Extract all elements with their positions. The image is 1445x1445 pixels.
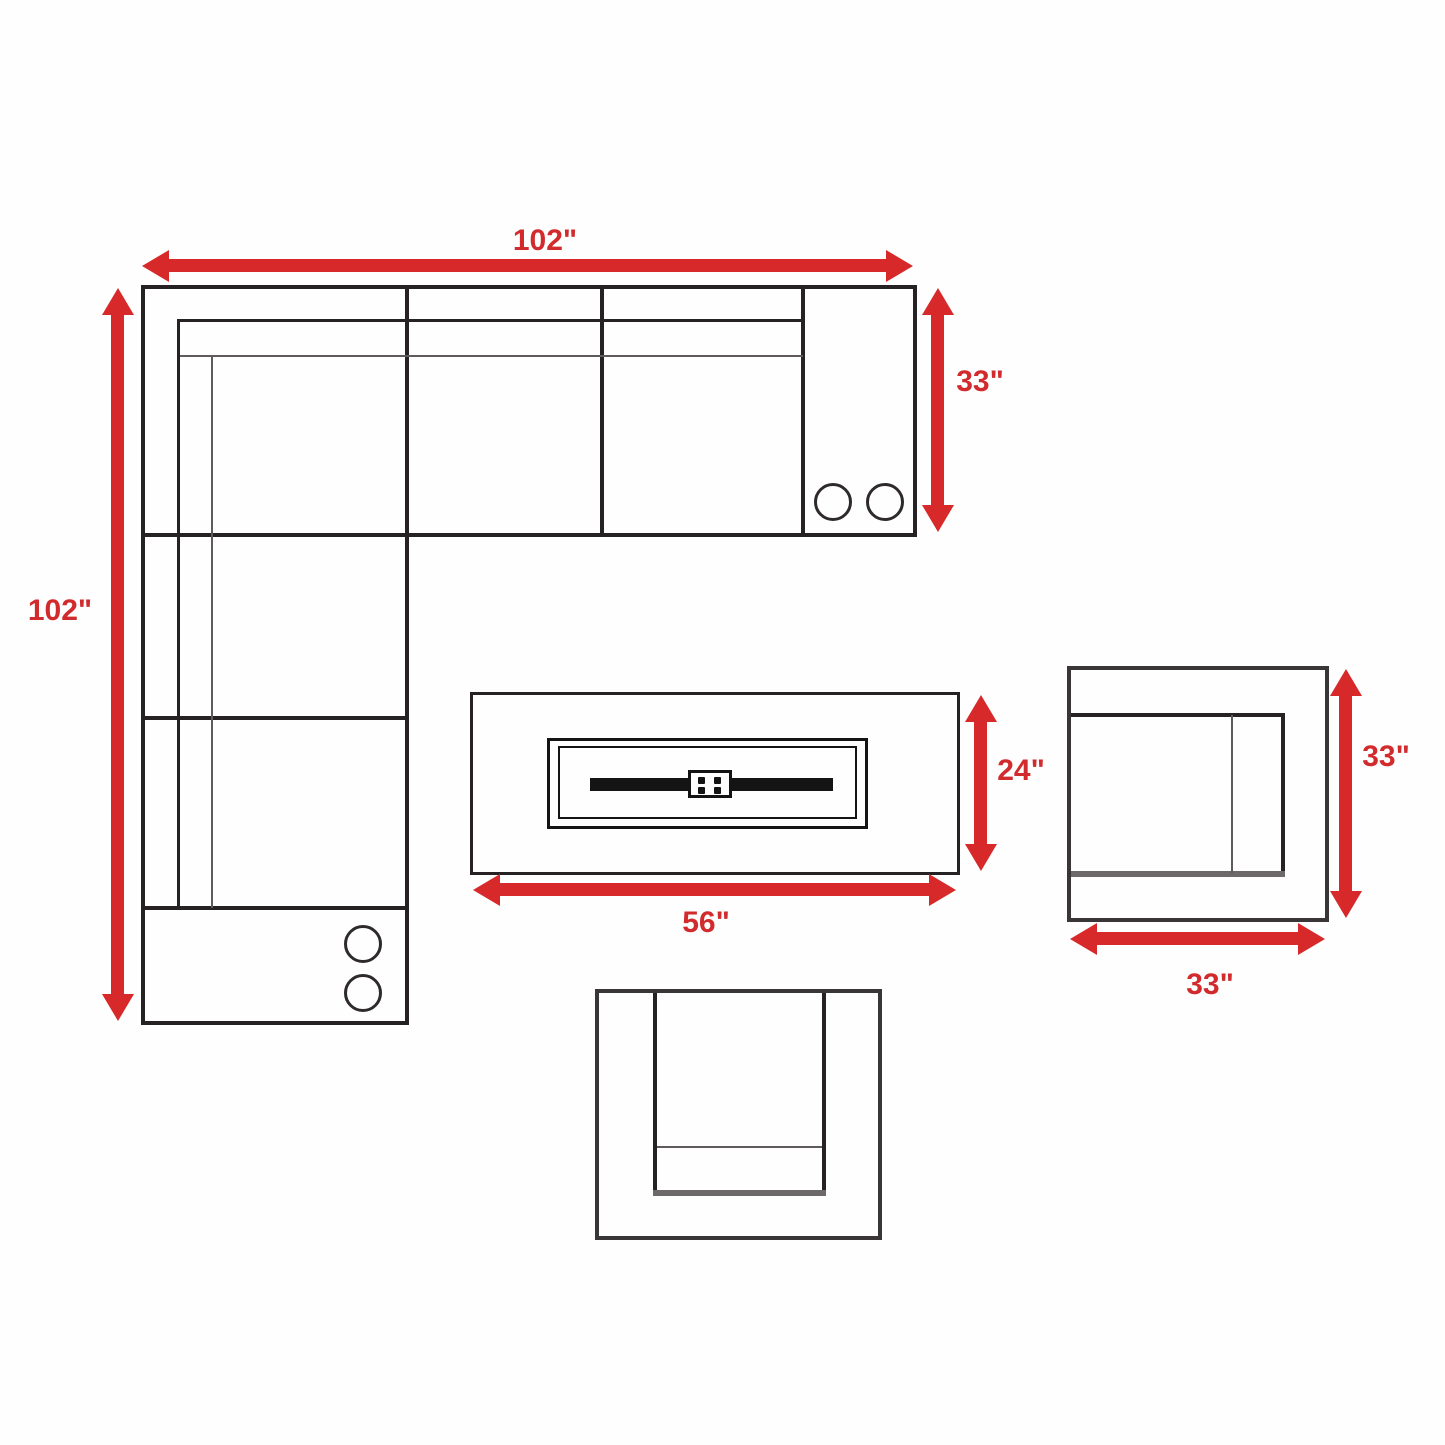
dimension-label-fire-pit-depth: 24"	[956, 753, 1086, 789]
sofa-seat-divider	[141, 716, 409, 720]
dimension-arrow-sofa-length	[111, 313, 124, 996]
dimension-label-fire-pit-width: 56"	[641, 905, 771, 941]
igniter-dot-icon	[714, 777, 721, 784]
dimension-label-chair-width: 33"	[1145, 967, 1275, 1003]
sofa-backrest-line	[177, 319, 803, 322]
dimension-arrow-fire-pit-width	[498, 883, 931, 896]
sofa-cushion-line	[180, 355, 803, 357]
chair-cushion-line	[1231, 715, 1233, 873]
chair-outline	[1067, 666, 1329, 922]
cup-holder-icon	[814, 483, 852, 521]
sofa-cushion-line	[211, 356, 213, 908]
chair-cushion-line	[657, 1146, 822, 1148]
chair-seat-line	[1071, 713, 1285, 717]
dimension-arrow-chair-width	[1095, 932, 1300, 945]
dimension-arrow-sofa-width	[167, 259, 888, 272]
sofa-console-divider	[801, 285, 805, 537]
dimension-arrow-sofa-depth	[931, 313, 944, 507]
chair-seat-front-line	[1071, 871, 1285, 877]
cup-holder-icon	[344, 974, 382, 1012]
sofa-left-column-outline	[141, 285, 409, 1025]
cup-holder-icon	[866, 483, 904, 521]
chair-seat-line	[1281, 713, 1285, 877]
dimension-label-sofa-depth: 33"	[915, 364, 1045, 400]
fire-pit-igniter-box	[688, 770, 732, 798]
cup-holder-icon	[344, 925, 382, 963]
dimension-arrow-chair-depth	[1339, 694, 1352, 893]
dimension-label-chair-depth: 33"	[1321, 739, 1445, 775]
igniter-dot-icon	[698, 777, 705, 784]
chair-seat-line	[653, 993, 657, 1196]
chair-seat-line	[822, 993, 826, 1196]
dimension-label-sofa-width: 102"	[480, 223, 610, 259]
furniture-dimension-diagram: 102" 102" 33" 24" 56" 33" 33"	[0, 0, 1445, 1445]
sofa-console-divider	[141, 906, 409, 910]
dimension-label-sofa-length: 102"	[0, 593, 125, 629]
sofa-armrest-line	[177, 319, 180, 908]
chair-outline	[595, 989, 882, 1240]
chair-seat-front-line	[653, 1190, 826, 1196]
igniter-dot-icon	[714, 787, 721, 794]
sofa-seat-divider	[600, 285, 604, 537]
igniter-dot-icon	[698, 787, 705, 794]
